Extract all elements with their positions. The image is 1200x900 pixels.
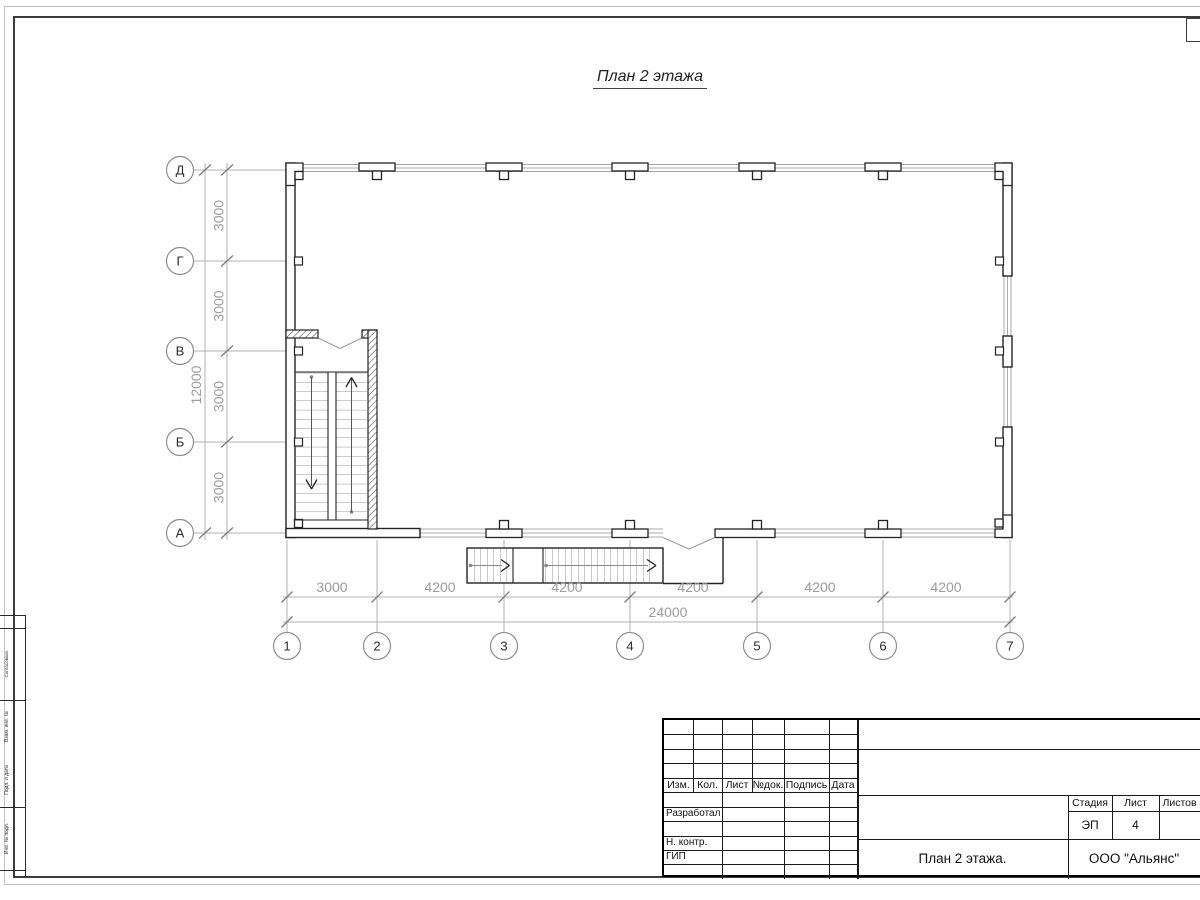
- titleblock-header-ndok: №док.: [752, 778, 784, 792]
- row-axis-label: Г: [176, 254, 183, 269]
- dim-label: 3000: [211, 290, 227, 321]
- drawing-sheet: План 2 этажа: [0, 0, 1200, 900]
- dim-total-label: 12000: [188, 365, 204, 404]
- exterior-stair: [467, 538, 723, 584]
- stairwell-walls: [286, 330, 377, 529]
- col-axis-label: 7: [1006, 639, 1013, 654]
- titleblock-header-izm: Изм.: [664, 778, 693, 792]
- title-block: Изм. Кол. Лист №док. Подпись Дата Разраб…: [662, 718, 1200, 877]
- dim-total-label: 24000: [649, 604, 688, 620]
- titleblock-doc-title: План 2 этажа.: [857, 839, 1068, 879]
- col-axis-label: 3: [500, 639, 507, 654]
- titleblock-company: ООО "Альянс": [1068, 839, 1200, 879]
- titleblock-row-razrabotal: Разработал: [666, 807, 722, 821]
- col-axis-label: 5: [753, 639, 760, 654]
- titleblock-header-data: Дата: [829, 778, 857, 792]
- row-axis-label: А: [176, 526, 185, 541]
- titleblock-sheet-label: Лист: [1112, 795, 1159, 811]
- titleblock-row-gip: ГИП: [666, 850, 722, 864]
- dim-label: 4200: [551, 579, 582, 595]
- col-axis-label: 1: [283, 639, 290, 654]
- margin-stamp-label: Согласовано: [1, 629, 13, 699]
- margin-stamp-label: Взам. инв. №: [1, 701, 13, 752]
- sheet-edge: [4, 6, 1200, 7]
- stairwell-stairs: [295, 372, 368, 520]
- dim-label: 4200: [930, 579, 961, 595]
- titleblock-sheet-value: 4: [1112, 811, 1159, 839]
- dimension-ticks: [199, 165, 1016, 628]
- titleblock-row-nkontr: Н. контр.: [666, 836, 722, 850]
- titleblock-stage-label: Стадия: [1068, 795, 1112, 811]
- row-axis-label: Д: [176, 163, 185, 178]
- row-axis-label: В: [176, 344, 185, 359]
- col-axis-label: 2: [373, 639, 380, 654]
- dim-label: 4200: [424, 579, 455, 595]
- dim-label: 3000: [211, 381, 227, 412]
- titleblock-stage-value: ЭП: [1068, 811, 1112, 839]
- door-swing: [318, 338, 715, 549]
- dim-label: 4200: [677, 579, 708, 595]
- plan-walls: [286, 163, 1012, 549]
- margin-stamp-label: Инв. № подл.: [1, 808, 13, 869]
- col-axis-label: 4: [626, 639, 633, 654]
- frame-left: [13, 16, 15, 878]
- sheet-edge: [4, 884, 1200, 885]
- titleblock-header-list: Лист: [722, 778, 752, 792]
- frame-top: [13, 16, 1200, 18]
- dimension-lines: [194, 163, 1014, 632]
- margin-stamp-label: Подп. и дата: [1, 754, 13, 806]
- row-axis-label: Б: [176, 435, 185, 450]
- titleblock-sheets-label: Листов: [1159, 795, 1200, 811]
- titleblock-header-podpis: Подпись: [784, 778, 829, 792]
- drawing-title: План 2 этажа: [555, 68, 745, 86]
- dim-label: 4200: [804, 579, 835, 595]
- dim-label: 3000: [316, 579, 347, 595]
- frame-corner-box: [1186, 18, 1200, 42]
- grid-bubbles: Д Г В Б А 1 2 3 4 5 6 7: [167, 157, 1024, 660]
- titleblock-header-kol: Кол.: [693, 778, 722, 792]
- dimension-labels: 3000 3000 3000 3000 12000 3000 4200 4200…: [188, 200, 962, 620]
- dim-label: 3000: [211, 472, 227, 503]
- col-axis-label: 6: [879, 639, 886, 654]
- dim-label: 3000: [211, 200, 227, 231]
